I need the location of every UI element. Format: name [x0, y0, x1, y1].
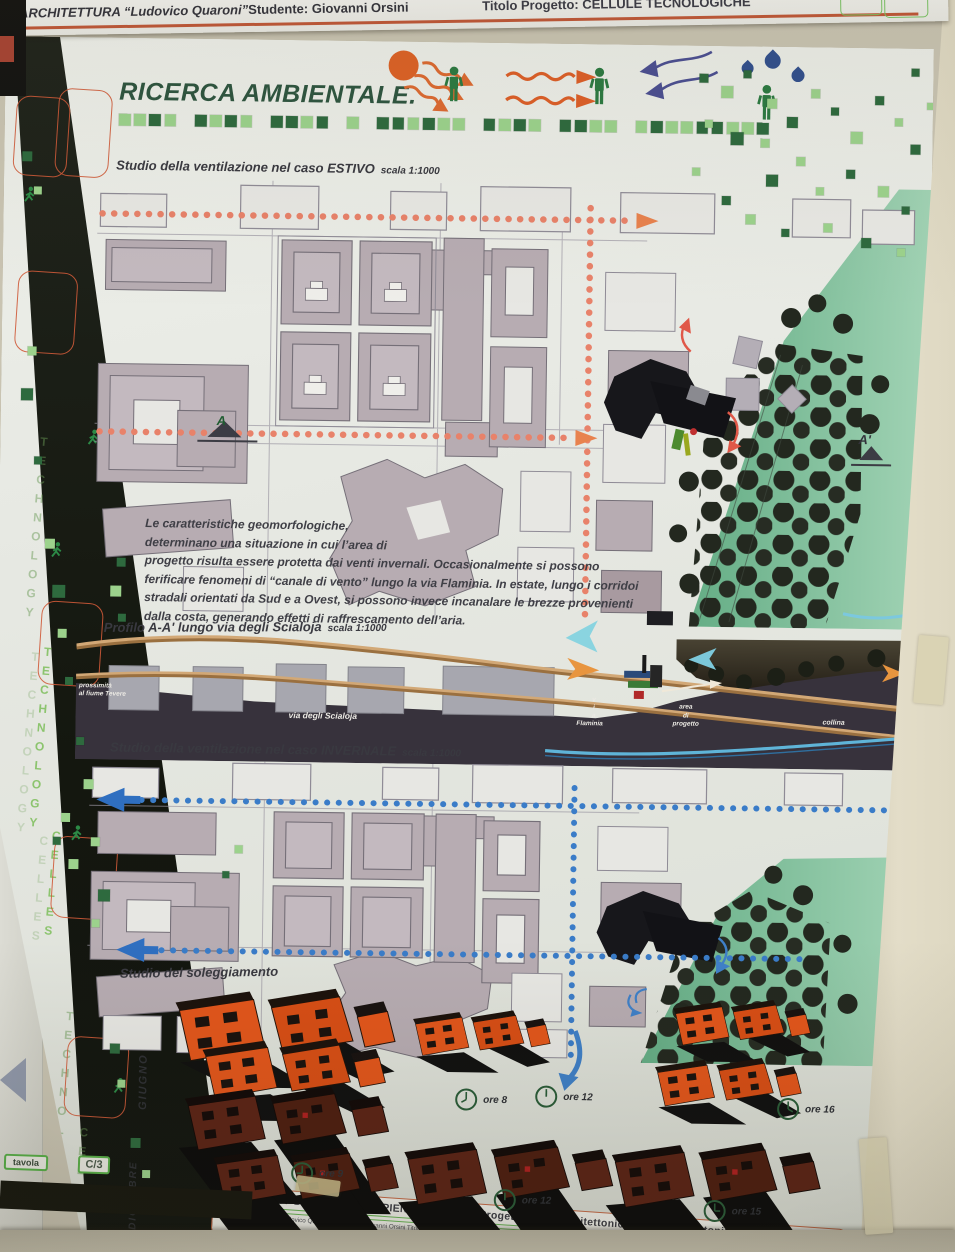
green-square [761, 139, 770, 148]
green-square [45, 539, 55, 549]
profile-label-line: di [673, 712, 699, 721]
green-square [142, 1170, 150, 1178]
green-square [240, 115, 252, 127]
month-label-giugno: GIUGNO [137, 1030, 150, 1110]
green-square [514, 119, 526, 131]
tavola-code-badge: C/3 [78, 1155, 110, 1174]
green-square [743, 70, 751, 78]
green-square [316, 116, 328, 128]
runner-icon [69, 825, 84, 843]
green-square [423, 118, 435, 130]
green-square [347, 117, 359, 129]
green-square [831, 108, 839, 116]
green-square [53, 837, 61, 845]
profile-label-line: al fiume Tevere [79, 690, 126, 699]
green-square [286, 116, 298, 128]
profile-label-line: Flaminia [576, 720, 602, 728]
tavola-badge: tavola [4, 1154, 49, 1172]
green-square [851, 132, 863, 144]
green-square [878, 186, 889, 197]
green-square [846, 170, 855, 179]
green-square [83, 779, 93, 789]
green-square [34, 186, 42, 194]
green-square [91, 837, 100, 846]
green-square [118, 614, 126, 622]
green-square [117, 558, 126, 567]
green-square [119, 114, 131, 126]
clock-icon [492, 1187, 518, 1213]
clock-label: ore 16 [805, 1104, 835, 1115]
header-project-title: Titolo Progetto: CELLULE TECNOLOGICHE [482, 0, 751, 13]
profile-label-line: progetto [672, 720, 698, 729]
marker-a-label: A [217, 413, 227, 428]
clock-label: ore 15 [732, 1206, 762, 1217]
green-square [222, 871, 229, 878]
header-strip: I ARCHITETTURA “Ludovico Quaroni” Studen… [0, 0, 948, 36]
june-cluster [403, 998, 554, 1095]
green-square [816, 187, 824, 195]
green-square [58, 629, 67, 638]
green-square [699, 74, 708, 83]
poster: TECHNOLOGY TECHNOLOGY CELLES TECHNOLOGY … [0, 36, 934, 1249]
winter-wind-down-arrow-icon [556, 1029, 593, 1091]
green-square [68, 859, 78, 869]
green-square [301, 116, 313, 128]
clock-ore-8: ore 8 [453, 1086, 507, 1113]
clock-icon [775, 1096, 801, 1122]
green-square [895, 118, 903, 126]
green-square [484, 119, 496, 131]
green-square [811, 89, 820, 98]
green-square [560, 120, 572, 132]
band-orange-frame [13, 270, 78, 356]
green-square [681, 121, 693, 133]
green-square [92, 919, 100, 927]
green-square [22, 151, 32, 161]
green-square [897, 248, 905, 256]
clock-ore-12-dec: ore 12 [492, 1187, 552, 1214]
profile-label-line: a [585, 712, 603, 720]
green-square [65, 677, 73, 685]
green-square [731, 132, 744, 145]
green-square [745, 214, 755, 224]
clock-ore-15: ore 15 [701, 1198, 761, 1225]
clock-ore-16: ore 16 [775, 1096, 835, 1123]
band-orange-frame [54, 87, 114, 178]
left-sheet-arrow-icon [0, 1058, 26, 1102]
green-square [149, 114, 161, 126]
board-corner-red [0, 36, 14, 62]
marker-a1-label: A' [858, 432, 871, 447]
green-square [796, 157, 805, 166]
green-square [235, 845, 243, 853]
profile-label-tevere: prossimità al fiume Tevere [79, 682, 126, 699]
green-square [34, 456, 42, 464]
clock-icon [533, 1083, 559, 1109]
masking-tape [913, 635, 949, 705]
green-square [666, 121, 678, 133]
person-icon [444, 66, 464, 102]
green-square [110, 1044, 120, 1054]
wind-arrows-right-icon [504, 67, 601, 114]
green-square [575, 120, 587, 132]
green-square [130, 1138, 140, 1148]
photo-frame: TECHNOLOGY TECHNOLOGY CELLES TECHNOLOGY … [0, 0, 955, 1252]
green-square [636, 121, 648, 133]
header-faculty: I ARCHITETTURA “Ludovico Quaroni” [12, 2, 248, 21]
profile-label-line: area [673, 703, 699, 712]
green-square [408, 118, 420, 130]
green-square [117, 1080, 125, 1088]
green-square [861, 238, 871, 248]
green-square [21, 388, 33, 400]
header-green-box [840, 0, 882, 16]
green-square [61, 813, 70, 822]
header-green-box [884, 0, 928, 18]
raindrop-icon [761, 49, 784, 72]
profile-label-area: area di progetto [672, 703, 699, 729]
clock-icon [453, 1086, 479, 1112]
green-square [134, 114, 146, 126]
green-square [910, 145, 920, 155]
raindrop-icon [789, 66, 807, 84]
green-square [271, 116, 283, 128]
green-square [757, 122, 769, 134]
green-square [902, 207, 910, 215]
poster-title: RICERCA AMBIENTALE. [119, 78, 417, 111]
description-paragraph: Le caratteristiche geomorfologiche, dete… [144, 514, 640, 632]
profile-label-collina: collina [822, 719, 844, 726]
green-square [605, 120, 617, 132]
section-soleggiamento-label: Studio del soleggiamento [120, 964, 278, 981]
green-square [98, 889, 110, 901]
green-square [195, 115, 207, 127]
green-square [766, 175, 778, 187]
green-square [722, 196, 731, 205]
green-square [210, 115, 222, 127]
clock-label: ore 12 [563, 1091, 593, 1102]
green-square [529, 119, 541, 131]
profile-label-scialoja: via degli Scialoja [288, 710, 357, 721]
wall [0, 1230, 955, 1252]
clock-label: ore 12 [522, 1195, 552, 1206]
green-square [692, 168, 700, 176]
green-square [499, 119, 511, 131]
green-square [453, 118, 465, 130]
green-square [377, 117, 389, 129]
green-square [712, 122, 724, 134]
green-square [912, 69, 920, 77]
profile-label-line: i [585, 704, 603, 712]
green-square [28, 346, 37, 355]
clock-icon [701, 1198, 727, 1224]
green-square [705, 120, 713, 128]
green-square [392, 117, 404, 129]
header-student: Studente: Giovanni Orsini [248, 0, 409, 17]
green-square [781, 229, 789, 237]
green-square [164, 114, 176, 126]
green-square [721, 86, 733, 98]
section-estivo-scale: scala 1:1000 [381, 165, 440, 177]
green-square [225, 115, 237, 127]
breeze-arrows-icon [553, 618, 614, 681]
green-square [767, 99, 777, 109]
green-square [438, 118, 450, 130]
green-square [875, 96, 884, 105]
green-square [76, 737, 84, 745]
green-square [110, 586, 121, 597]
clock-label: ore 8 [483, 1094, 507, 1105]
green-square [927, 103, 934, 110]
green-square [52, 585, 65, 598]
green-square [787, 117, 798, 128]
clock-ore-12: ore 12 [533, 1083, 593, 1110]
green-square [590, 120, 602, 132]
green-square [651, 121, 663, 133]
profile-label-flaminia: v i a Flaminia [584, 696, 603, 728]
green-square [823, 223, 832, 232]
profile-label-line: v [585, 696, 603, 704]
